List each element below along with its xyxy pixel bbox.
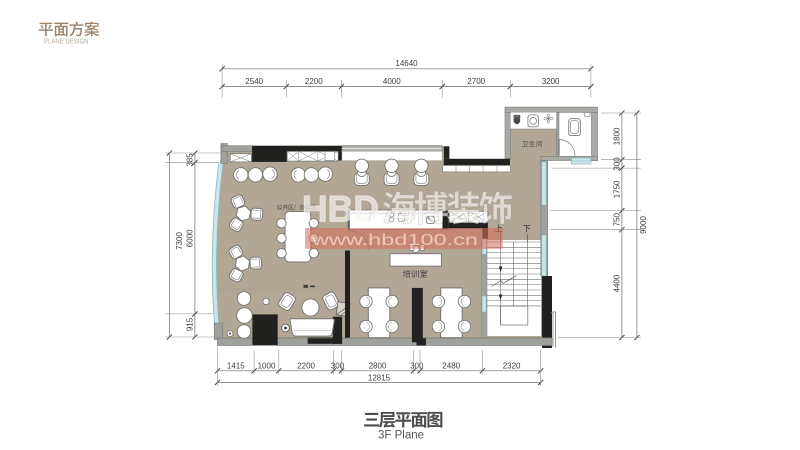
svg-text:HBD: HBD xyxy=(302,189,379,230)
svg-text:14640: 14640 xyxy=(395,59,418,68)
svg-text:2200: 2200 xyxy=(305,77,323,86)
svg-text:2320: 2320 xyxy=(503,361,521,370)
svg-text:750: 750 xyxy=(612,212,621,226)
svg-text:1415: 1415 xyxy=(227,361,245,370)
svg-text:2540: 2540 xyxy=(245,77,263,86)
svg-text:300: 300 xyxy=(410,361,424,370)
svg-text:PLANE DESIGN: PLANE DESIGN xyxy=(44,39,89,46)
svg-text:6000: 6000 xyxy=(185,229,194,247)
svg-text:2480: 2480 xyxy=(442,361,460,370)
svg-text:915: 915 xyxy=(185,317,194,331)
svg-text:4400: 4400 xyxy=(612,274,621,292)
svg-text:1800: 1800 xyxy=(612,127,621,145)
svg-text:12815: 12815 xyxy=(368,374,391,383)
svg-text:385: 385 xyxy=(185,153,194,167)
svg-text:3F Plane: 3F Plane xyxy=(378,430,424,442)
svg-text:2800: 2800 xyxy=(369,361,387,370)
svg-text:9000: 9000 xyxy=(639,216,648,234)
svg-text:7300: 7300 xyxy=(175,232,184,250)
svg-text:2200: 2200 xyxy=(297,361,315,370)
svg-text:1750: 1750 xyxy=(612,180,621,198)
svg-text:2700: 2700 xyxy=(467,77,485,86)
svg-text:www.hbd100.cn: www.hbd100.cn xyxy=(310,232,478,249)
svg-text:4000: 4000 xyxy=(383,77,401,86)
svg-text:1000: 1000 xyxy=(258,361,276,370)
svg-text:3200: 3200 xyxy=(542,77,560,86)
svg-text:300: 300 xyxy=(331,361,345,370)
svg-text:300: 300 xyxy=(612,157,621,171)
